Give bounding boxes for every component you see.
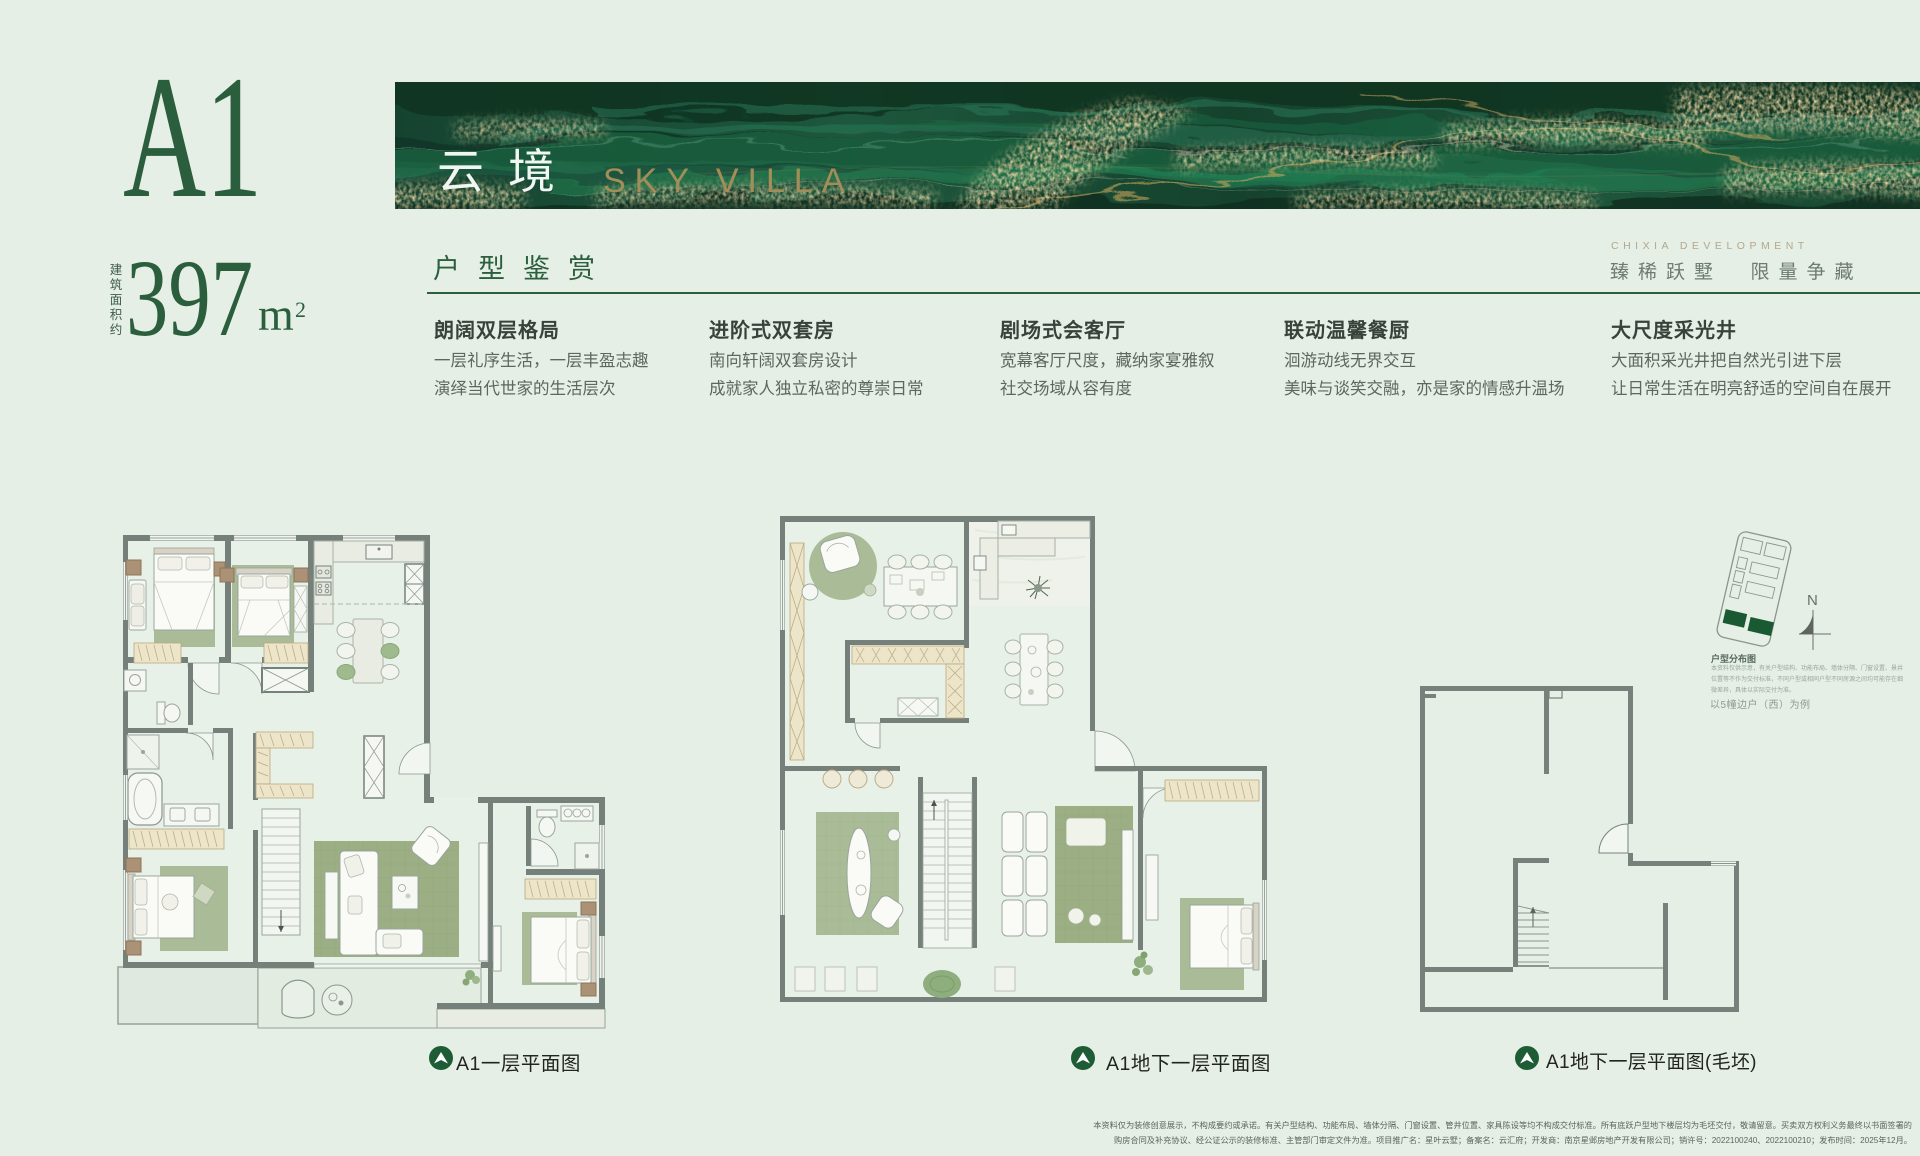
svg-text:N: N [1807,592,1818,609]
svg-text:云境: 云境 [437,145,579,198]
svg-text:SKY VILLA: SKY VILLA [603,162,854,200]
